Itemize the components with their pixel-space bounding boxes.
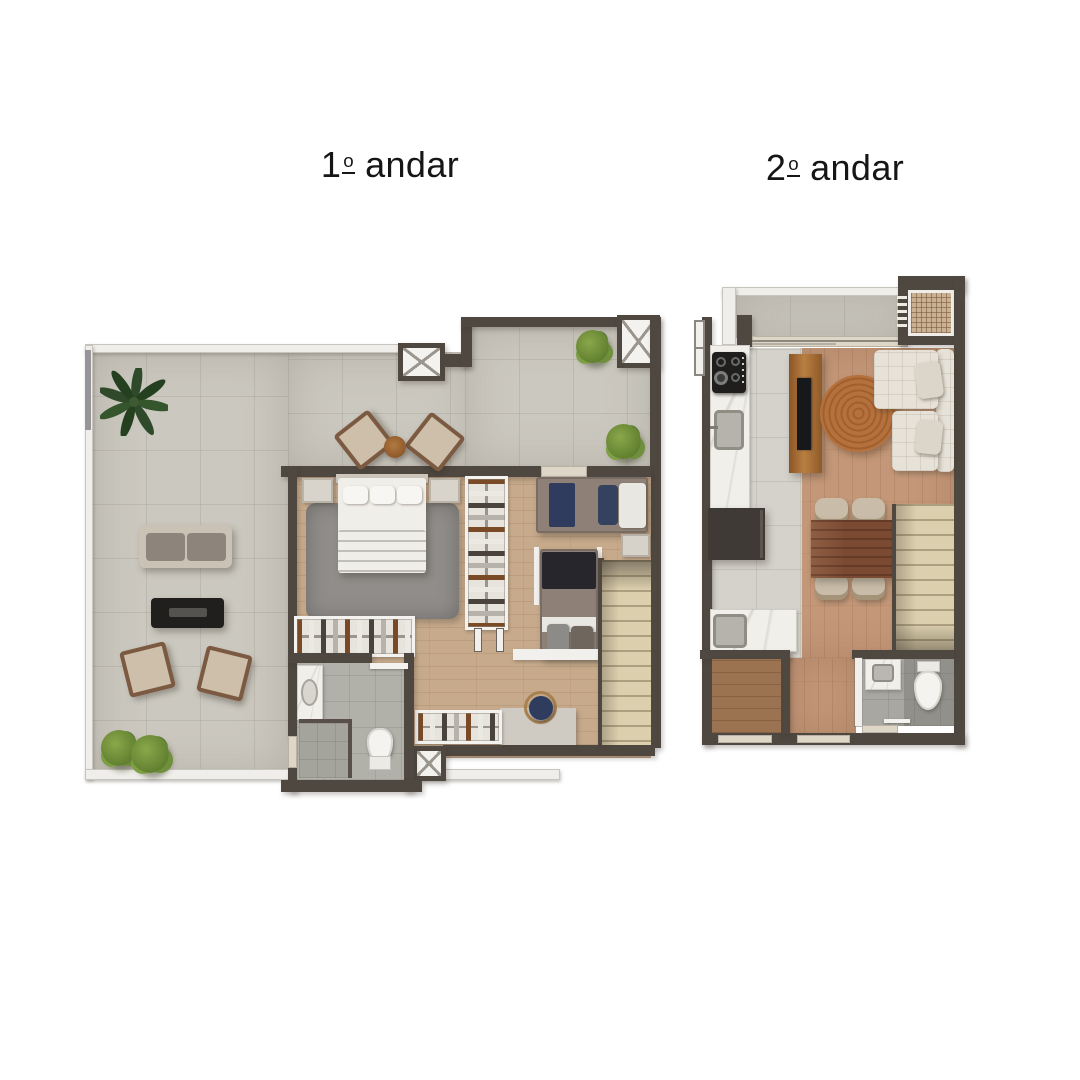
wall-pillar [737,315,752,347]
wall-right [954,276,965,745]
kitchen-sink [714,410,744,450]
sofa-pillow [914,360,945,399]
tv [797,378,811,450]
tall-cabinet [708,508,765,560]
ac-ledge-divider [694,347,705,349]
entry-door-sill [797,735,850,743]
ac-grille [908,290,954,336]
vent-slat [897,317,907,320]
bathroom-door-sill [862,725,898,733]
dining-table [811,520,897,578]
vent-slat [897,296,907,299]
foyer-wall [700,650,790,659]
vent-slat [897,310,907,313]
floor2-plan [0,0,1080,1080]
bathroom-sink [872,664,894,682]
floorplan-image: 1oandar 2oandar [0,0,1080,1080]
foyer-floor [712,659,781,733]
balcony-parapet-top [722,287,908,296]
bathroom-wall [855,658,862,726]
faucet [710,426,718,429]
vent-slat [897,303,907,306]
balcony-parapet-left [722,287,736,345]
hall-wood-floor [790,658,856,734]
burner [714,371,728,385]
sliding-door-track [752,340,908,342]
burner [731,357,740,366]
vent-slat [897,324,907,327]
bathroom-wall [852,650,954,659]
sliding-door-leaf [752,343,836,345]
shower-bar [884,719,910,723]
cabinet-edge [760,510,763,558]
cooktop-knobs [742,357,744,385]
sofa-pillow [914,419,943,456]
burner [731,373,740,382]
kitchen-sink [713,614,747,648]
foyer-wall [781,650,790,734]
door-sill [718,735,772,743]
balcony-floor [736,296,908,338]
burner [716,357,726,367]
